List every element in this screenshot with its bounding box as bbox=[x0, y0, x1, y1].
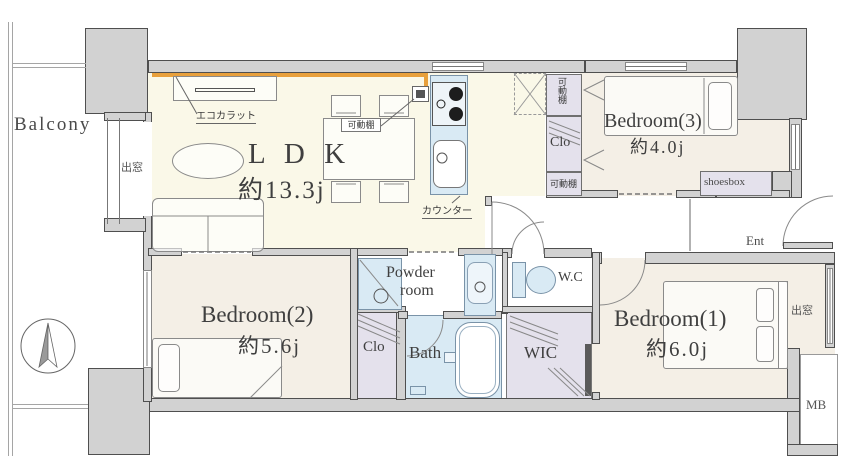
powder-room-label-line2: room bbox=[400, 282, 434, 300]
wall-bedroom1-left-lower bbox=[592, 392, 600, 400]
closet-bedroom2-label: Clo bbox=[363, 339, 385, 356]
shoesbox-label: shoesbox bbox=[704, 176, 745, 188]
wic-door-leaf bbox=[585, 344, 591, 396]
bath-counter bbox=[444, 352, 456, 363]
bedroom1-size: 約6.0j bbox=[646, 333, 709, 363]
wic-label: WIC bbox=[524, 343, 557, 363]
pillow-bedroom3 bbox=[708, 82, 732, 130]
dining-chair bbox=[379, 181, 409, 203]
bedroom3-side-window bbox=[791, 124, 800, 170]
wall-bedroom2-powder-divider bbox=[350, 248, 358, 400]
toilet-bowl bbox=[526, 266, 556, 294]
wall-bay-stub-top bbox=[104, 112, 146, 121]
wall-powder-bath-left bbox=[398, 311, 408, 319]
powder-room-label-line1: Powder bbox=[386, 264, 435, 282]
kitchen-sink bbox=[433, 140, 466, 188]
headboard-bedroom1 bbox=[778, 281, 788, 369]
wall-wc-left bbox=[502, 252, 508, 314]
wall-top-ldk bbox=[148, 60, 585, 73]
bedroom3-name: Bedroom(3) bbox=[604, 110, 702, 133]
accent-wall-corner bbox=[424, 77, 428, 86]
bedroom2-size: 約5.6j bbox=[238, 330, 301, 360]
balcony-label: Balcony bbox=[14, 114, 91, 136]
wall-bedroom1-left-upper bbox=[592, 252, 600, 344]
meter-box-label: MB bbox=[806, 397, 826, 413]
bedroom2-window bbox=[143, 270, 152, 368]
bay-window-label-right: 出窓 bbox=[791, 302, 813, 318]
wall-bay-stub-bottom bbox=[104, 218, 146, 232]
ecocarat-label: エコカラット bbox=[196, 107, 256, 124]
wall-wc-top-right bbox=[544, 248, 592, 258]
pillow-bedroom1 bbox=[756, 326, 774, 362]
wall-bedroom1-top bbox=[645, 252, 835, 264]
movable-shelf-label-vertical: 可動棚 bbox=[556, 77, 569, 115]
movable-shelf-label-ldk: 可動棚 bbox=[341, 118, 381, 132]
wall-column-topleft bbox=[85, 28, 148, 114]
ldk-size: 約13.3j bbox=[238, 170, 326, 206]
bedroom3-top-window bbox=[625, 62, 687, 71]
dining-chair bbox=[331, 181, 361, 203]
counter-label: カウンター bbox=[422, 202, 472, 219]
sofa bbox=[152, 198, 264, 252]
pillow-bedroom1 bbox=[756, 288, 774, 322]
dining-chair bbox=[331, 95, 361, 117]
compass-icon bbox=[21, 319, 75, 373]
refrigerator-space bbox=[514, 73, 546, 115]
vanity-basin bbox=[467, 262, 493, 304]
ldk-name: L D K bbox=[248, 138, 351, 171]
dining-chair bbox=[379, 95, 409, 117]
bath-drain bbox=[410, 386, 426, 395]
bedroom2-name: Bedroom(2) bbox=[201, 302, 313, 328]
entrance-label: Ent bbox=[746, 233, 764, 249]
stove bbox=[432, 82, 466, 126]
ldk-bay-window-opening bbox=[143, 122, 152, 216]
wall-clo-bath-divider bbox=[396, 306, 406, 400]
bedroom1-bay-window bbox=[827, 268, 833, 344]
wall-ldk-bedroom2-right bbox=[252, 248, 362, 256]
coffee-table bbox=[172, 143, 244, 179]
tv-icon bbox=[195, 88, 255, 92]
bedroom1-name: Bedroom(1) bbox=[614, 306, 726, 332]
wall-wc-bottom bbox=[502, 306, 600, 313]
wall-cabinet-glyph bbox=[416, 90, 425, 98]
bathtub-inner bbox=[459, 326, 496, 394]
pillow-bedroom2 bbox=[158, 344, 180, 392]
wall-bottom bbox=[140, 398, 800, 412]
kitchen-window bbox=[432, 62, 484, 71]
toilet-tank bbox=[512, 262, 526, 298]
wall-powder-top-left bbox=[352, 248, 408, 256]
wall-column-topright bbox=[737, 28, 807, 120]
closet-hall-label: Clo bbox=[550, 135, 570, 151]
entrance-door-leaf bbox=[783, 242, 833, 249]
floorplan: Balcony L D K 約13.3j Bedroom(2) 約5.6j Be… bbox=[0, 0, 841, 472]
bath-label: Bath bbox=[409, 343, 441, 363]
wall-hall-stub bbox=[485, 196, 492, 206]
wall-column-bottomleft bbox=[88, 368, 150, 455]
bay-window-label-left: 出窓 bbox=[121, 159, 143, 175]
wc-label: W.C bbox=[558, 270, 583, 286]
wall-bottom-right bbox=[787, 444, 838, 456]
bedroom3-size: 約4.0j bbox=[630, 133, 686, 159]
movable-shelf-label-small: 可動棚 bbox=[550, 177, 577, 190]
